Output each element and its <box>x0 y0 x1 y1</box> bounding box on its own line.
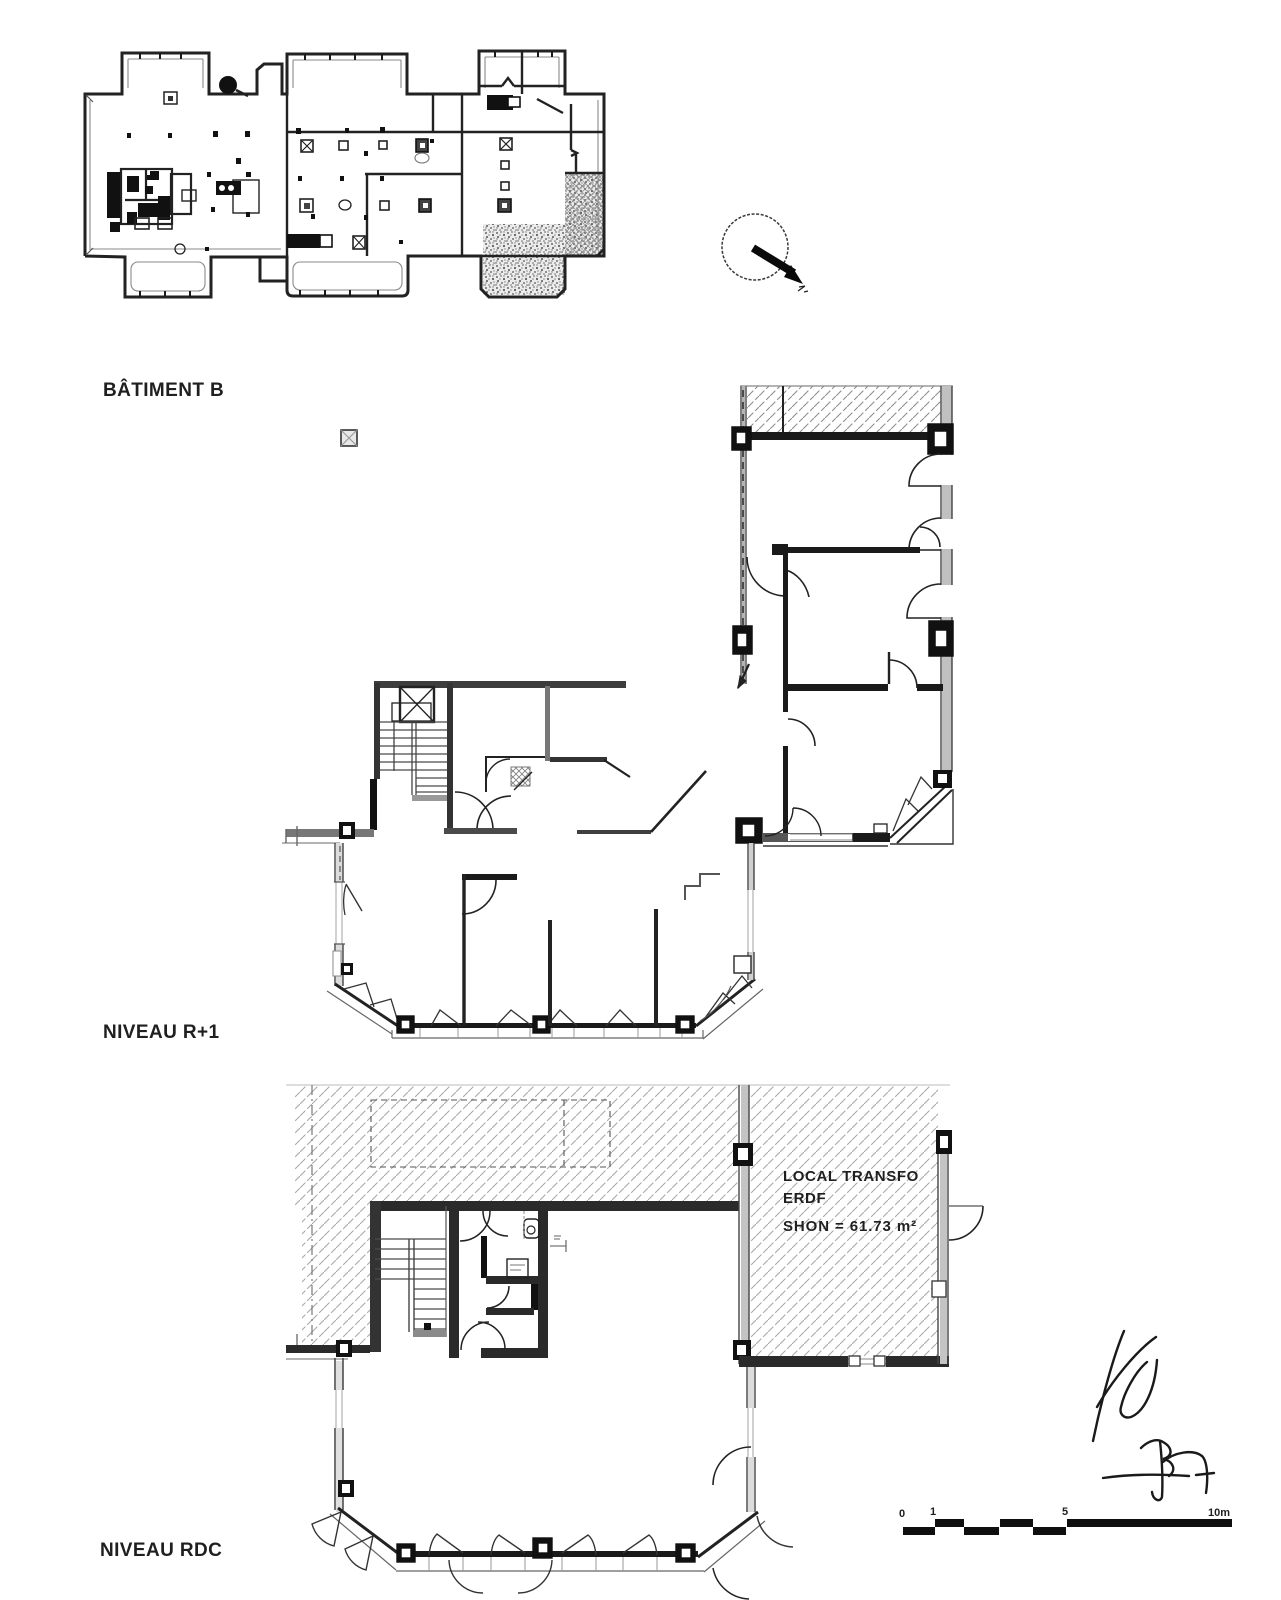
svg-text:5: 5 <box>1062 1506 1068 1518</box>
svg-text:SHON = 61.73 m²: SHON = 61.73 m² <box>783 1218 917 1235</box>
svg-text:0: 0 <box>899 1508 905 1520</box>
svg-text:10m: 10m <box>1208 1507 1230 1519</box>
svg-text:LOCAL TRANSFO: LOCAL TRANSFO <box>783 1168 919 1185</box>
svg-text:ERDF: ERDF <box>783 1190 826 1207</box>
svg-text:NIVEAU RDC: NIVEAU RDC <box>100 1540 222 1561</box>
svg-text:1: 1 <box>930 1506 936 1518</box>
svg-text:BÂTIMENT B: BÂTIMENT B <box>103 379 224 401</box>
svg-text:NIVEAU R+1: NIVEAU R+1 <box>103 1022 219 1043</box>
